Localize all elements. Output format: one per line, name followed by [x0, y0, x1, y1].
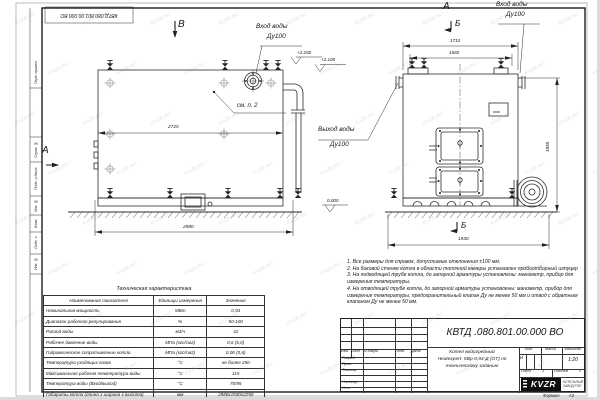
- elevation-top2: +2.100: [321, 58, 335, 63]
- sheet-value: 1: [542, 370, 544, 374]
- revision-col-izm: Изм.: [341, 350, 349, 354]
- format-label: Формат: [543, 393, 560, 398]
- spec-col-units: Единицы измерения: [154, 296, 207, 306]
- boiler-front-view: [68, 60, 305, 218]
- spec-header-row: Наименование показателя Единицы измерени…: [44, 296, 265, 306]
- sheets-label: Листов: [554, 370, 568, 374]
- elevation-top1: +2.250: [297, 51, 311, 56]
- sign-row-tkontr: Т.контр.: [342, 369, 357, 373]
- outlet-dn: Ду100: [330, 142, 349, 149]
- top-stamp: КВТД.080.801.00.000 ВО: [45, 7, 133, 23]
- elevation-zero: 0.000: [327, 199, 339, 204]
- outlet-callout: Выход воды: [318, 127, 355, 134]
- margin-label-perv: Перв. примен.: [31, 8, 41, 137]
- masshtab-label: Масштаб: [561, 348, 585, 352]
- sign-row-utv: Утв.: [342, 387, 351, 391]
- margin-label-podp2: Подп. и дата: [31, 232, 41, 254]
- inlet-dn-side: Ду100: [506, 12, 525, 19]
- spec-row: Рабочее давление водыМПа (кгс/см2)0,6 (6…: [44, 337, 265, 347]
- product-name-line1: Котел водогрейный: [426, 351, 518, 356]
- spec-row: Диапазон рабочего регулирования%50-100: [44, 316, 265, 326]
- sign-row-razrab: Разраб.: [342, 357, 356, 361]
- boiler-side-view: [385, 58, 557, 218]
- spec-col-value: Значение: [207, 296, 265, 306]
- spec-table-title: Техническая характеристика: [43, 287, 265, 292]
- notes-block: 1. Все размеры для справок, допустимые о…: [347, 259, 586, 306]
- dim-front-base: 2980: [183, 226, 194, 231]
- note-3: 3. На подводящей трубе котла, до запорно…: [347, 272, 586, 285]
- spec-row: Температура уходящих газов°Сне более 250: [44, 358, 265, 368]
- kvzr-logo: KVZR: [521, 378, 561, 391]
- drawing-sheet: { "watermark": { "text": "KVZR.RU" }, "f…: [0, 0, 600, 400]
- note-1: 1. Все размеры для справок, допустимые о…: [347, 259, 586, 266]
- note-4: 4. На отводящей трубе котла, до запорной…: [347, 286, 586, 306]
- margin-label-podp1: Подп. и дата: [31, 162, 41, 196]
- massa-label: Масса: [540, 348, 561, 352]
- format-value: А3: [569, 393, 574, 398]
- revision-col-list: Лист: [351, 350, 360, 354]
- spec-table: Наименование показателя Единицы измерени…: [43, 295, 265, 400]
- dim-side-height: 1855: [546, 142, 551, 152]
- lit-value: И: [518, 356, 525, 360]
- margin-label-inv-dubl: Инв. № дубл.: [31, 196, 41, 215]
- format-note: Формат А3: [543, 394, 574, 398]
- spec-row: Расход водым3/ч32: [44, 327, 265, 337]
- dim-front-width: 2725: [168, 126, 179, 131]
- dim-side-top-outer: 1710: [450, 39, 460, 44]
- sheets-value: 2: [579, 370, 581, 374]
- logo-stripes-icon: [523, 380, 527, 388]
- dim-side-top-inner: 1560: [449, 51, 459, 56]
- dim-side-base: 1930: [458, 238, 469, 243]
- section-label-b-top: Б: [455, 20, 460, 28]
- view-label-v: В: [178, 20, 185, 30]
- spec-col-name: Наименование показателя: [44, 296, 154, 306]
- inlet-dn-front: Ду100: [267, 34, 286, 41]
- inlet-callout-front: Вход воды: [256, 24, 288, 31]
- inlet-callout-side: Вход воды: [496, 2, 528, 9]
- revision-col-data: Дата: [411, 350, 420, 354]
- product-name-line3: техническому заданию: [426, 365, 518, 370]
- view-label-a-top: А: [443, 2, 450, 12]
- section-label-b-bottom: Б: [461, 222, 466, 230]
- sign-row-nkontr: Н.контр.: [342, 381, 358, 385]
- revision-col-docum: N докум.: [364, 350, 379, 354]
- doc-number: КВТД .080.801.00.000 ВО: [426, 322, 584, 344]
- sheet-label: Лист: [521, 370, 531, 374]
- logo-subtext: КОТЕЛЬНЫЙ ЗАВОД РЭП: [563, 380, 585, 388]
- logo-sub2: ЗАВОД РЭП: [563, 384, 585, 388]
- spec-row: Гидравлическое сопротивление котлаМПа (к…: [44, 347, 265, 357]
- see-note-callout: см. п. 2: [237, 103, 257, 109]
- revision-col-podp: Подп.: [396, 350, 406, 354]
- margin-label-sprav: Справ. №: [31, 137, 41, 162]
- lit-label: Лит.: [518, 348, 540, 352]
- spec-row: Номинальная мощностьМВт0,93: [44, 306, 265, 316]
- scale-value: 1:20: [561, 358, 585, 363]
- margin-label-inv-podl: Инв. № подл.: [31, 254, 41, 274]
- product-name-line2: Heatexpert- КВр-0,93-Д (ОТ) по: [426, 358, 518, 363]
- spec-row: Температура воды (Вход/выход)°С70/95: [44, 379, 265, 389]
- logo-text: KVZR: [531, 379, 556, 389]
- spec-row: Максимальная рабочая температура воды°С1…: [44, 368, 265, 378]
- margin-label-vzam: Взам. инв. №: [31, 215, 41, 232]
- view-label-a-left: А: [42, 146, 49, 156]
- sign-row-prov: Пров.: [342, 363, 352, 367]
